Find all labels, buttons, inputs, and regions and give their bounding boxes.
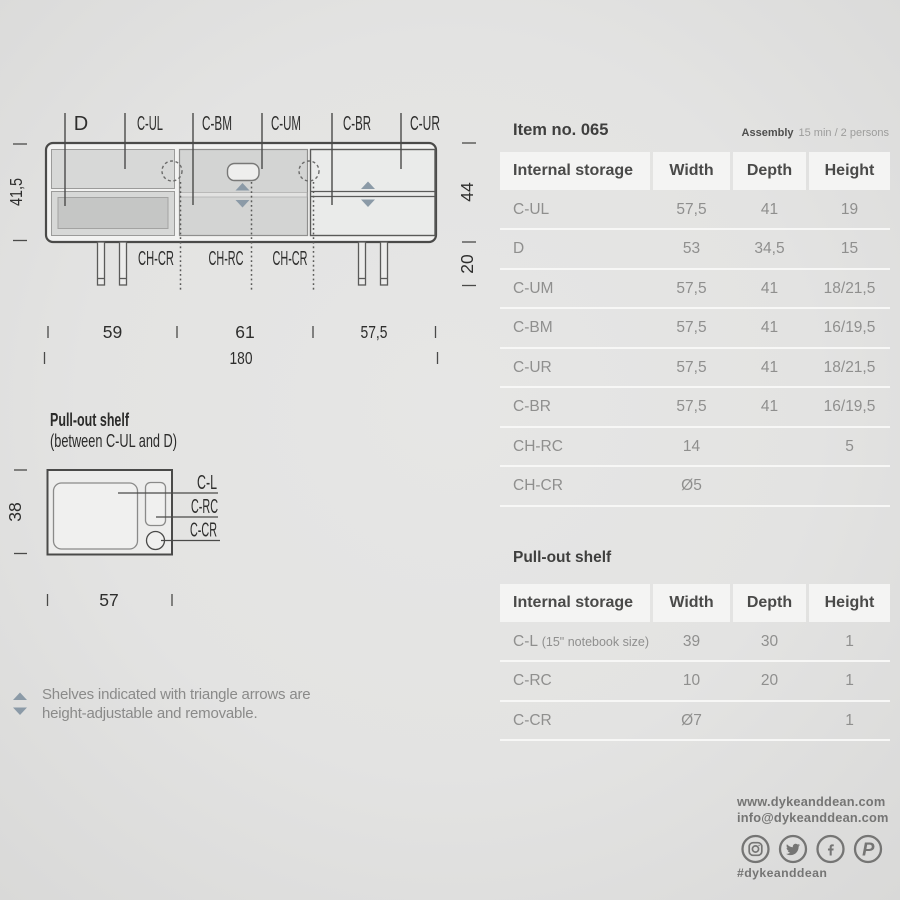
handle-cutout: [228, 164, 260, 181]
dim-pullout-depth: 38: [5, 502, 25, 521]
dim-width-left: 59: [103, 322, 122, 342]
instagram-icon[interactable]: [749, 843, 762, 856]
column-header: Depth: [733, 584, 806, 622]
item-number-title: Item no. 065: [513, 121, 608, 140]
cable-hole-label: CH-CR: [138, 248, 174, 270]
table-row: C-UR57,54118/21,5: [500, 349, 890, 389]
dim-total-width: 180: [230, 348, 253, 368]
pullout-label: C-CR: [190, 520, 217, 542]
compartment-label: D: [74, 113, 88, 135]
pinterest-icon[interactable]: P: [862, 839, 875, 860]
pullout-label: C-RC: [191, 496, 218, 518]
table-row: C-BR57,54116/19,5: [500, 388, 890, 428]
up-arrow-icon: [13, 693, 27, 701]
pullout-subtitle: (between C-UL and D): [50, 430, 177, 451]
dim-width-middle: 61: [235, 322, 254, 342]
compartment-labels: D C-UL C-BM C-UM C-BR C-UR: [74, 113, 440, 135]
column-header: Height: [809, 152, 890, 190]
svg-text:P: P: [862, 839, 875, 860]
note-arrow-icons: [13, 693, 27, 716]
spec-panel: Item no. 065 Assembly15 min / 2 persons …: [500, 0, 890, 900]
column-header: Width: [653, 584, 730, 622]
table-row: C-BM57,54116/19,5: [500, 309, 890, 349]
cable-hole-label: CH-RC: [209, 248, 244, 270]
down-arrow-icon: [13, 708, 27, 716]
assembly-label: Assembly: [742, 127, 794, 139]
drawer-front: [58, 198, 168, 229]
table-row: D5334,515: [500, 230, 890, 270]
facebook-icon[interactable]: [828, 844, 834, 855]
table-row: C-L (15" notebook size) 39301: [500, 623, 890, 663]
dim-pullout-width: 57: [99, 590, 118, 610]
dim-width-right: 57,5: [361, 322, 388, 342]
compartment-label: C-UR: [410, 113, 440, 135]
dim-height-right: 44: [457, 182, 477, 202]
column-header: Internal storage: [500, 584, 650, 622]
dim-height-body: 41,5: [6, 178, 26, 206]
brand-contact: www.dykeanddean.com info@dykeanddean.com: [737, 794, 889, 825]
table-row: CH-RC145: [500, 428, 890, 468]
column-header: Depth: [733, 152, 806, 190]
website-url[interactable]: www.dykeanddean.com: [737, 794, 889, 810]
pullout-title: Pull-out shelf: [50, 409, 130, 430]
dim-legs: 20: [457, 254, 477, 274]
compartment-label: C-UL: [137, 113, 163, 135]
column-header: Internal storage: [500, 152, 650, 190]
cable-hole-labels: CH-CR CH-RC CH-CR: [138, 248, 308, 270]
brand-hashtag: #dykeanddean: [737, 866, 827, 880]
row-note: (15" notebook size): [542, 635, 649, 649]
table-row: C-CRØ71: [500, 702, 890, 742]
cabinet-technical-drawing: D C-UL C-BM C-UM C-BR C-UR CH-CR CH-RC C…: [0, 0, 500, 770]
remote-slot: [146, 483, 166, 526]
note-line: Shelves indicated with triangle arrows a…: [42, 686, 310, 705]
twitter-icon[interactable]: [786, 844, 800, 855]
column-header: Width: [653, 152, 730, 190]
table-row: C-UM57,54118/21,5: [500, 270, 890, 310]
internal-storage-table-header: Internal storage Width Depth Height: [500, 152, 890, 190]
pullout-table-header: Internal storage Width Depth Height: [500, 584, 890, 622]
compartment-label: C-UM: [271, 113, 301, 135]
table-row: C-UL57,54119: [500, 191, 890, 231]
cable-hole-label: CH-CR: [273, 248, 308, 270]
pullout-table-title: Pull-out shelf: [513, 549, 611, 567]
assembly-info: Assembly15 min / 2 persons: [742, 127, 889, 139]
adjustable-shelf-note: Shelves indicated with triangle arrows a…: [42, 686, 310, 723]
compartment-label: C-BR: [343, 113, 371, 135]
column-header: Height: [809, 584, 890, 622]
note-line: height-adjustable and removable.: [42, 705, 310, 724]
assembly-value: 15 min / 2 persons: [799, 127, 890, 139]
compartment-label: C-BM: [202, 113, 232, 135]
pullout-label: C-L: [197, 472, 217, 494]
pullout-shelf-drawing: Pull-out shelf (between C-UL and D) C-L …: [5, 409, 220, 610]
social-icons: P: [740, 833, 888, 865]
email-address[interactable]: info@dykeanddean.com: [737, 810, 889, 826]
table-row: CH-CRØ5: [500, 467, 890, 507]
table-row: C-RC10201: [500, 662, 890, 702]
